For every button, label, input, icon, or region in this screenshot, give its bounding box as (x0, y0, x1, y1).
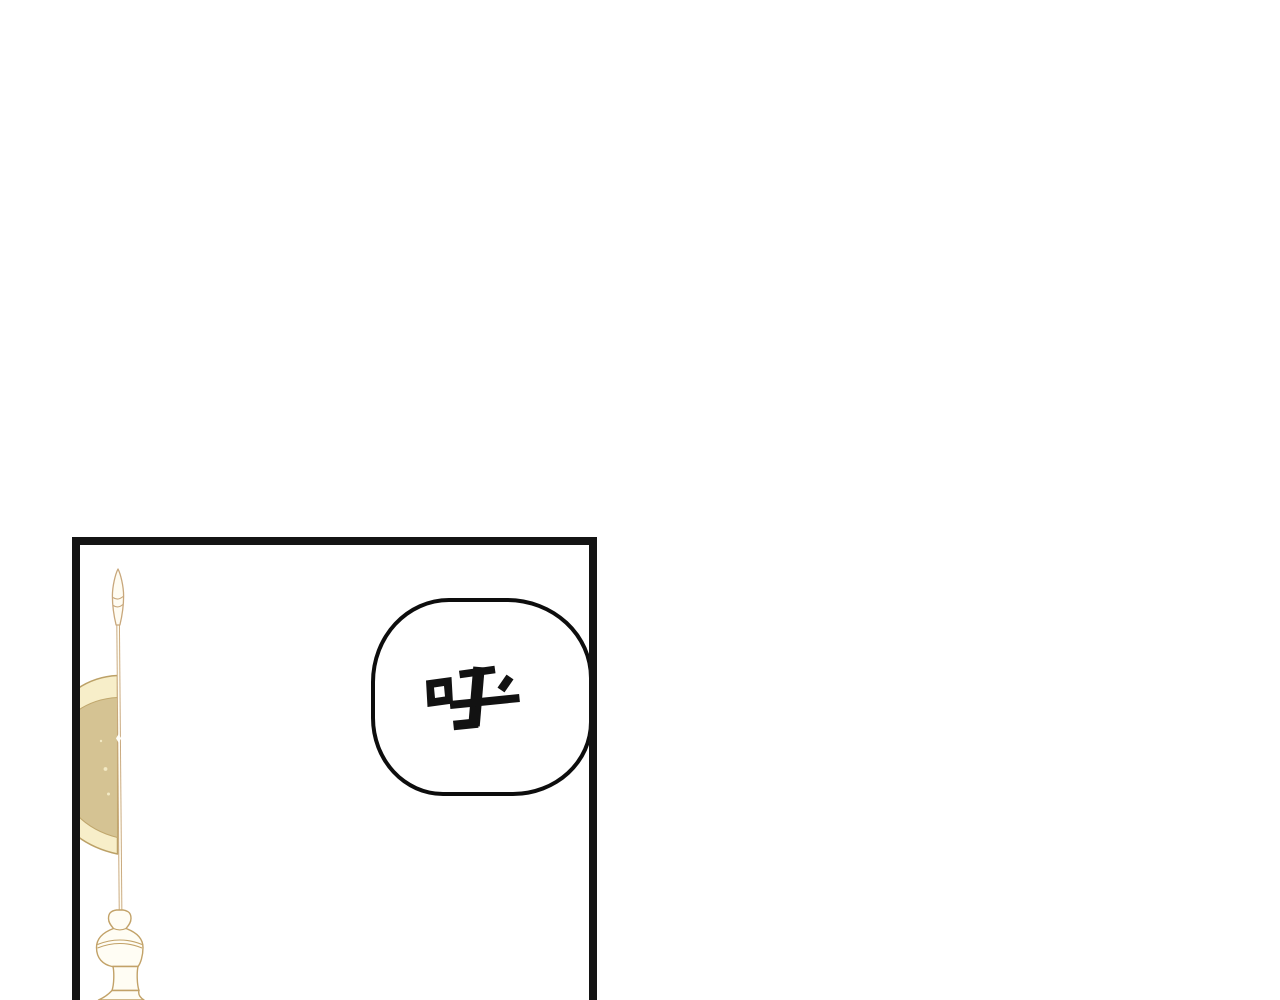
flag-pole-ornament (97, 910, 145, 1000)
hu-glyph-icon (422, 654, 524, 734)
comic-page: 呼 (0, 0, 1280, 1000)
flag-banner (77, 676, 118, 855)
flag-spearhead-icon (112, 569, 123, 625)
mouth-radical (426, 677, 453, 707)
hu-glyph-strokes (426, 667, 520, 726)
flag-standard (72, 565, 162, 1000)
speech-bubble-text: 呼 (375, 602, 376, 603)
